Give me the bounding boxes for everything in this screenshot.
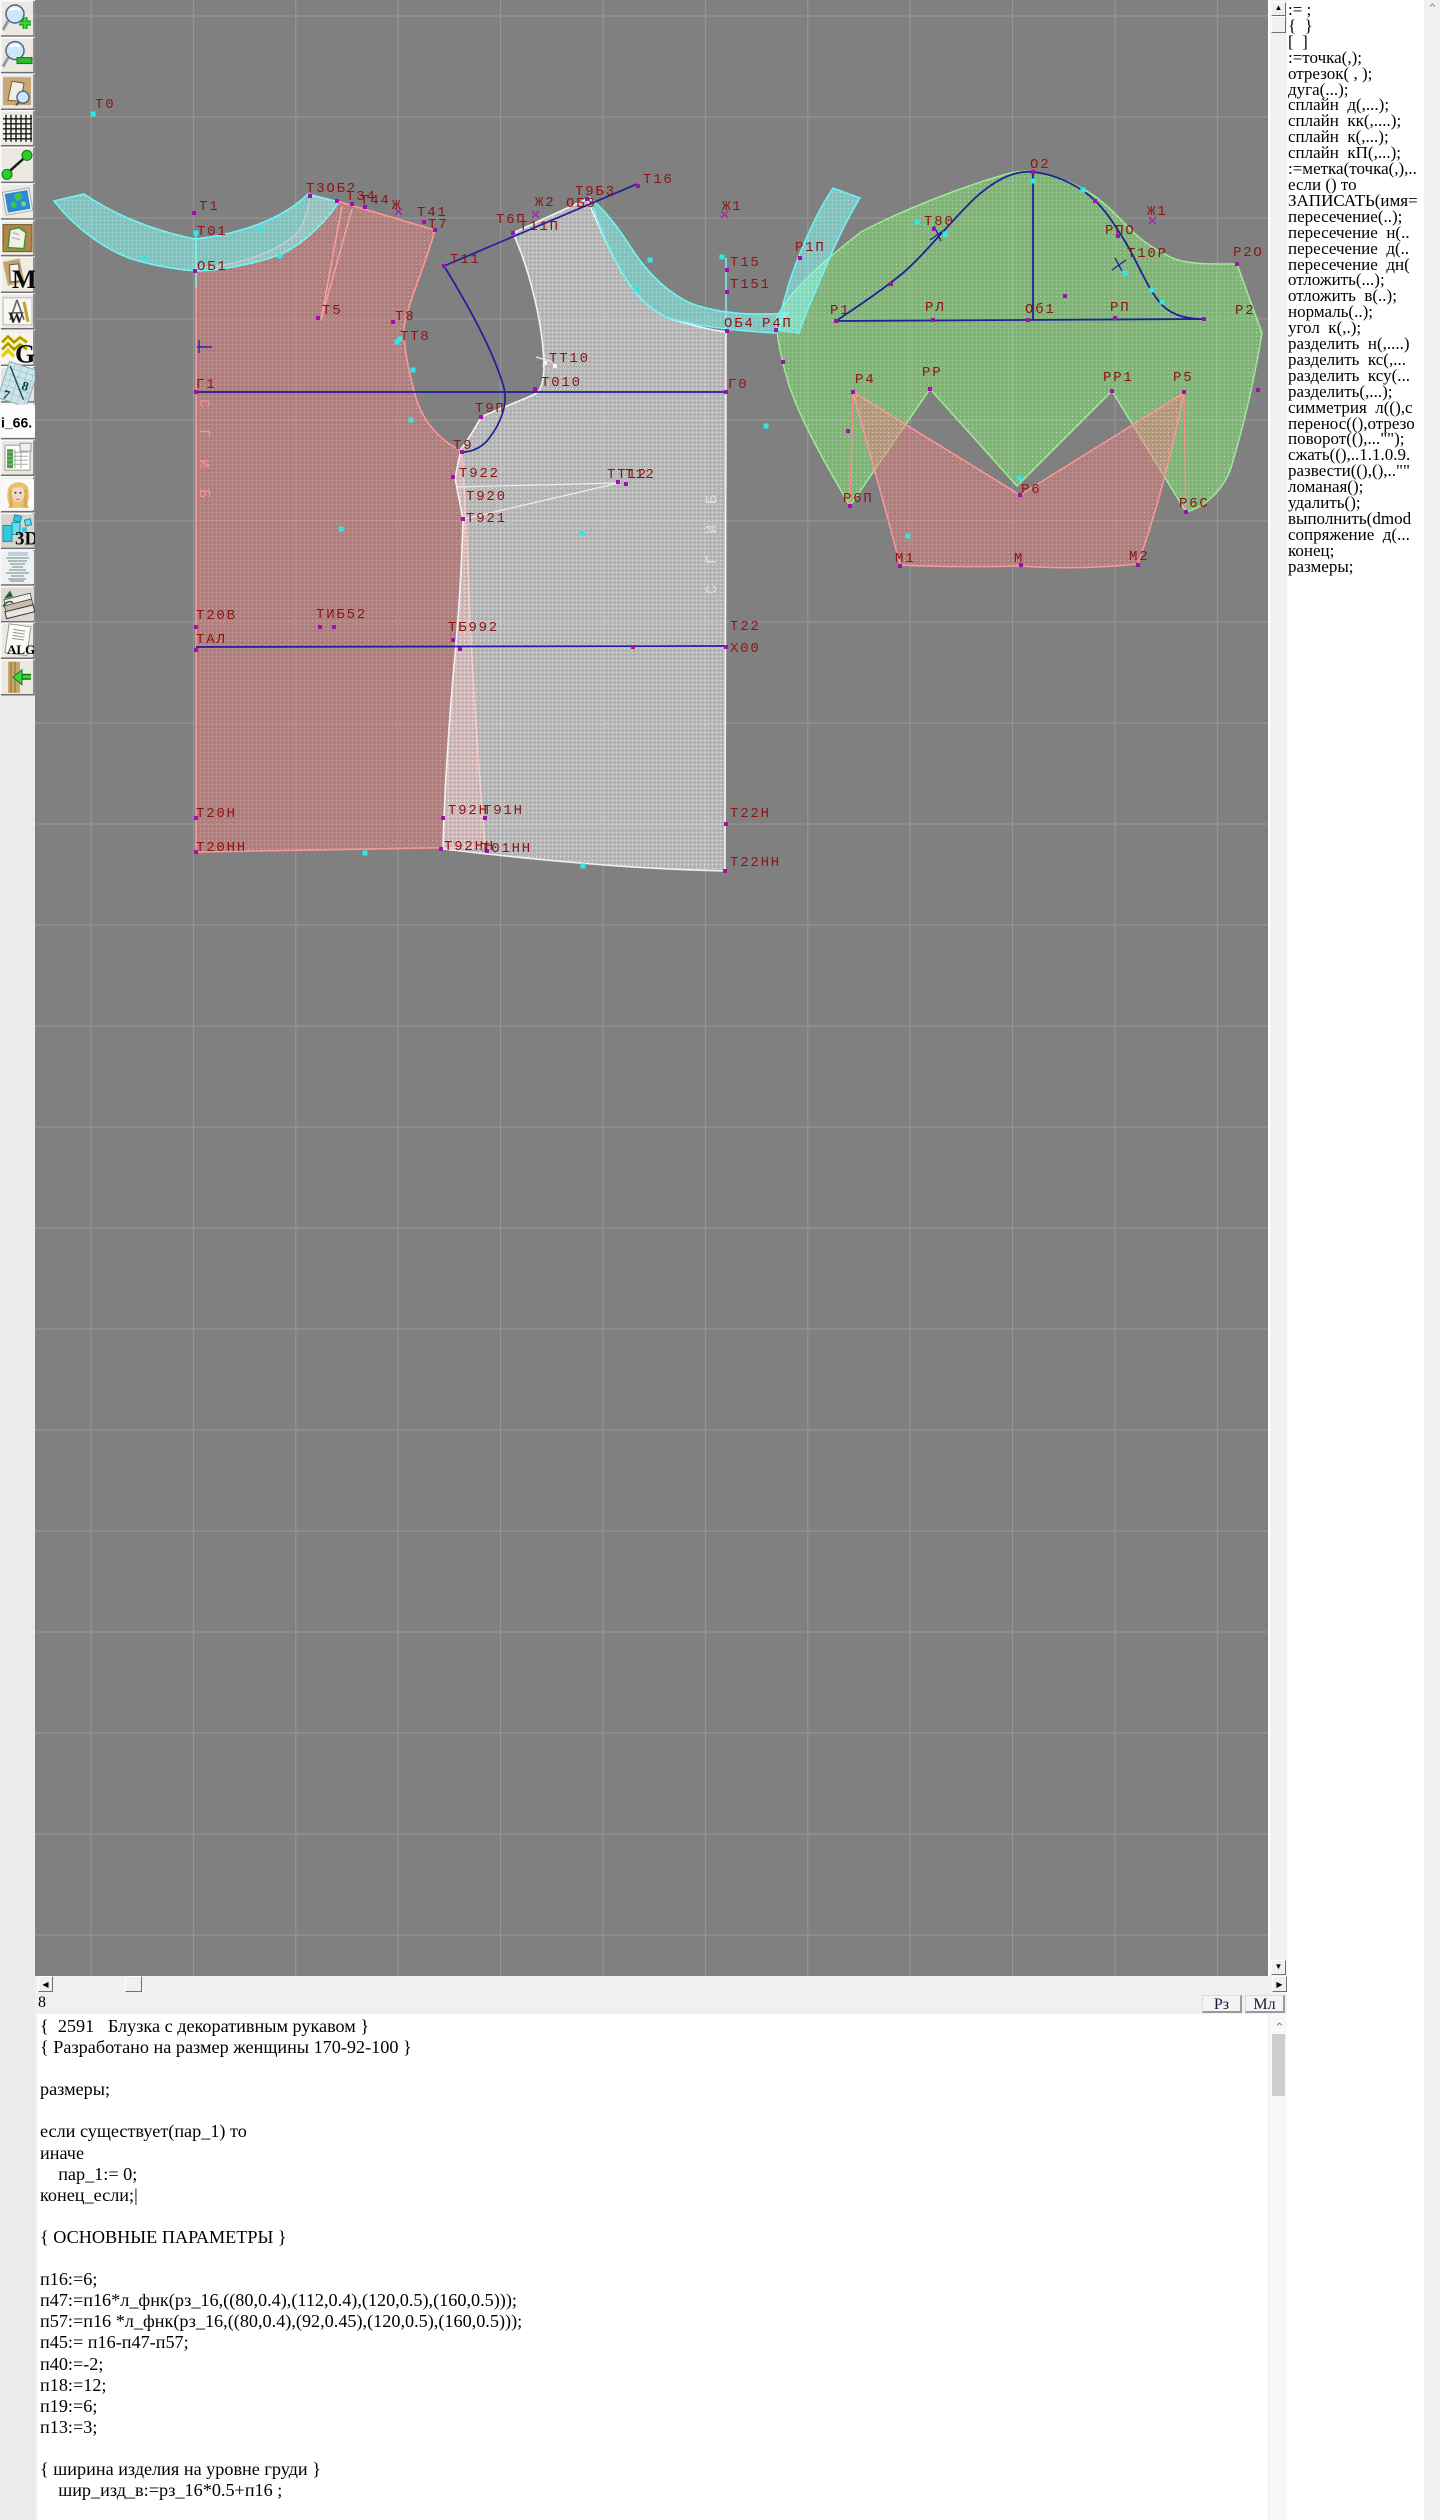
svg-text:Р2: Р2	[1235, 303, 1255, 319]
svg-text:Р1П: Р1П	[795, 240, 826, 256]
svg-text:Т11П: Т11П	[519, 219, 560, 235]
svg-text:Т20НН: Т20НН	[196, 840, 247, 856]
svg-text:М2: М2	[1129, 549, 1149, 565]
svg-text:Т151: Т151	[730, 277, 771, 293]
svg-text:Р6: Р6	[1021, 482, 1041, 498]
svg-text:Р4: Р4	[855, 372, 875, 388]
svg-text:Т010: Т010	[541, 375, 582, 391]
svg-text:Т922: Т922	[459, 466, 500, 482]
svg-text:ТБ992: ТБ992	[448, 620, 499, 636]
svg-text:М: М	[1014, 551, 1024, 567]
svg-text:Т44: Т44	[360, 193, 391, 209]
svg-text:Р2О: Р2О	[1233, 245, 1264, 261]
svg-text:Т10Р: Т10Р	[1127, 246, 1168, 262]
svg-text:Т22НН: Т22НН	[730, 855, 781, 871]
svg-text:РР1: РР1	[1103, 370, 1134, 386]
svg-text:Т1: Т1	[199, 199, 219, 215]
svg-text:Ж: Ж	[392, 198, 402, 214]
svg-text:Р4П: Р4П	[762, 316, 793, 332]
svg-text:Т8: Т8	[395, 309, 415, 325]
svg-text:РР: РР	[922, 365, 942, 381]
svg-text:i_66.: i_66.	[1, 415, 32, 431]
svg-text:Х00: Х00	[730, 641, 761, 657]
svg-text:Т15: Т15	[730, 255, 761, 271]
svg-text:Т91Н: Т91Н	[483, 803, 524, 819]
svg-text:Т920: Т920	[466, 489, 507, 505]
svg-text:Т01НН: Т01НН	[481, 841, 532, 857]
svg-text:ОБ1: ОБ1	[197, 259, 228, 275]
svg-text:М1: М1	[895, 551, 915, 567]
svg-text:РПО: РПО	[1105, 223, 1136, 239]
svg-text:Т7: Т7	[428, 217, 448, 233]
svg-text:Ж2: Ж2	[535, 195, 555, 211]
svg-text:Р5: Р5	[1173, 370, 1193, 386]
svg-text:ALG: ALG	[7, 642, 35, 657]
svg-text:Т20Н: Т20Н	[196, 806, 237, 822]
svg-text:Т921: Т921	[466, 511, 507, 527]
svg-text:РП: РП	[1110, 300, 1130, 316]
svg-text:СГИБ: СГИБ	[704, 474, 721, 594]
svg-text:Т22: Т22	[730, 619, 761, 635]
svg-text:M: M	[12, 265, 35, 294]
svg-text:Об1: Об1	[1025, 301, 1056, 318]
svg-text:Т12: Т12	[625, 467, 656, 483]
svg-text:Г1: Г1	[196, 377, 216, 393]
svg-text:W: W	[8, 310, 24, 327]
svg-text:Т5: Т5	[322, 303, 342, 319]
svg-text:ТАЛ: ТАЛ	[196, 632, 227, 648]
svg-text:Т16: Т16	[643, 172, 674, 188]
svg-text:Т22Н: Т22Н	[730, 806, 771, 822]
svg-text:3D: 3D	[15, 528, 35, 549]
svg-text:Р6П: Р6П	[843, 491, 874, 507]
svg-text:Р1: Р1	[830, 303, 850, 319]
svg-text:РЛ: РЛ	[925, 300, 945, 316]
svg-text:Т9: Т9	[453, 438, 473, 454]
svg-text:ОБ3: ОБ3	[566, 196, 597, 212]
svg-text:Т0: Т0	[95, 97, 115, 113]
svg-text:Ж1: Ж1	[1147, 204, 1167, 220]
svg-text:Т80: Т80	[924, 214, 955, 230]
svg-text:СГИБ: СГИБ	[195, 399, 212, 519]
svg-text:ОБ4: ОБ4	[724, 316, 755, 332]
svg-text:Т9П: Т9П	[475, 401, 506, 417]
svg-text:Р6С: Р6С	[1179, 496, 1210, 512]
svg-text:ТТ8: ТТ8	[400, 329, 431, 345]
svg-text:Ж1: Ж1	[722, 199, 742, 215]
svg-text:ТТ10: ТТ10	[549, 351, 590, 367]
svg-text:Т11: Т11	[450, 252, 481, 268]
svg-text:О2: О2	[1030, 157, 1050, 173]
svg-text:Т20В: Т20В	[196, 608, 237, 624]
svg-text:ТИБ52: ТИБ52	[316, 607, 367, 623]
svg-text:Г0: Г0	[728, 377, 748, 393]
svg-text:Т01: Т01	[197, 224, 228, 240]
